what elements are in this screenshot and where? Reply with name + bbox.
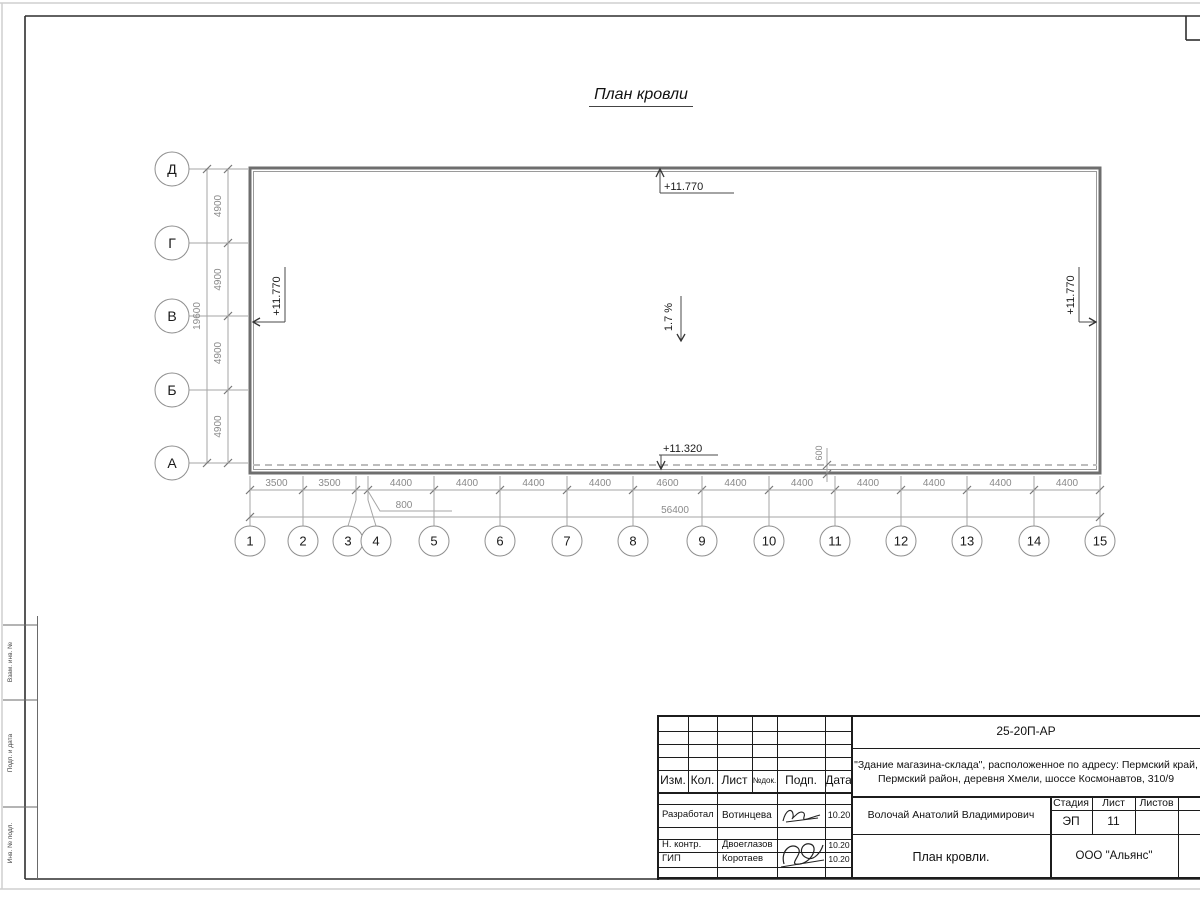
title-block-line [657, 715, 1200, 717]
sign-date-1: 10.20 [826, 839, 852, 852]
eaves-offset-label: 600 [814, 445, 824, 460]
side-strip-label: Взам. инв. № [7, 642, 14, 682]
col-axis-label: 1 [246, 534, 253, 549]
col-axis-label: 12 [894, 534, 908, 549]
dimension-total-label: 19600 [192, 302, 203, 330]
col-header-izm: Изм. [658, 770, 688, 792]
author-name: Волочай Анатолий Владимирович [852, 797, 1050, 834]
elev-right-value: +11.770 [1065, 275, 1077, 314]
col-axis-label: 3 [344, 534, 351, 549]
sign-date-0: 10.20 [826, 804, 852, 827]
sheets-label: Листов [1135, 797, 1178, 810]
elev-left-value: +11.770 [271, 276, 283, 315]
dimension-label: 800 [396, 500, 413, 511]
col-axis-label: 2 [299, 534, 306, 549]
col-axis-label: 4 [372, 534, 379, 549]
drawing-sheet: Взам. инв. №Подп. и датаИнв. № подл.ДГВБ… [0, 0, 1200, 900]
sign-name-0: Вотинцева [719, 804, 779, 827]
page-title: План кровли [589, 86, 693, 107]
row-axis-label: Д [167, 161, 177, 177]
dimension-label: 4400 [522, 478, 545, 489]
col-axis-label: 5 [430, 534, 437, 549]
dimension-label: 4900 [213, 341, 224, 364]
dimension-label: 4400 [456, 478, 479, 489]
side-strip-label: Инв. № подл. [7, 823, 14, 864]
title-block-line [852, 748, 1200, 749]
title-block-line [777, 716, 778, 878]
sheets-value [1135, 810, 1178, 834]
title-block-line [657, 877, 1200, 879]
dimension-label: 4400 [923, 478, 946, 489]
dimension-label: 4400 [589, 478, 612, 489]
title-block-line [717, 716, 718, 878]
title-block-line [752, 716, 753, 793]
sign-role-2: ГИП [659, 852, 719, 867]
sign-role-0: Разработал [659, 804, 719, 827]
row-axis-label: Г [168, 235, 176, 251]
dimension-label: 4400 [1056, 478, 1079, 489]
slope-value: 1.7 % [663, 303, 675, 331]
drawing-name: План кровли. [852, 835, 1050, 879]
row-axis-label: В [167, 308, 176, 324]
col-axis-label: 8 [629, 534, 636, 549]
dimension-label: 3500 [318, 478, 341, 489]
title-block-line [852, 834, 1200, 835]
title-block-line [825, 716, 826, 878]
title-block-line [852, 796, 1200, 798]
elev-top-value: +11.770 [664, 181, 703, 193]
dimension-label: 4400 [989, 478, 1012, 489]
title-block-line [658, 744, 852, 745]
title-block-line [658, 839, 852, 840]
title-block-line [658, 792, 852, 794]
sheet-value: 11 [1092, 810, 1135, 834]
title-block-line [658, 867, 852, 868]
signature-votintseva [780, 806, 824, 826]
title-block-line [658, 827, 852, 828]
company-name: ООО "Альянс" [1050, 835, 1178, 879]
col-axis-label: 7 [563, 534, 570, 549]
col-header-list: Лист [717, 770, 752, 792]
dimension-label: 4400 [390, 478, 413, 489]
title-block-line [1178, 796, 1179, 878]
row-axis-label: Б [167, 382, 176, 398]
col-header-podp: Подп. [777, 770, 825, 792]
row-axis-label: А [167, 455, 177, 471]
col-axis-label: 11 [828, 534, 842, 549]
col-axis-label: 13 [960, 534, 974, 549]
col-axis-leader [348, 500, 356, 526]
title-block-line [1050, 796, 1052, 878]
col-axis-label: 6 [496, 534, 503, 549]
title-block-line [658, 731, 852, 732]
dimension-label: 4400 [791, 478, 814, 489]
dimension-label: 4900 [213, 415, 224, 438]
object-address-line1: "Здание магазина-склада", расположенное … [854, 759, 1198, 771]
sign-date-2: 10.20 [826, 852, 852, 867]
col-axis-leader [368, 500, 376, 526]
title-block-line [1135, 796, 1136, 835]
dimension-label: 4400 [724, 478, 747, 489]
sheet-label: Лист [1092, 797, 1135, 810]
roof-outline-inner [254, 172, 1097, 470]
title-block-line [658, 804, 852, 805]
elev-eaves-value: +11.320 [663, 443, 702, 455]
sign-role-1: Н. контр. [659, 839, 719, 852]
object-address: "Здание магазина-склада", расположенное … [852, 748, 1200, 796]
title-block-line [1092, 796, 1093, 835]
title-block-line [657, 715, 659, 880]
dimension-label: 4600 [656, 478, 679, 489]
col-axis-label: 9 [698, 534, 705, 549]
col-header-ndok: №док. [752, 770, 777, 792]
signature-gip-nkontr [778, 838, 826, 869]
doc-code: 25-20П-АР [852, 717, 1200, 747]
object-address-line2: Пермский район, деревня Хмели, шоссе Кос… [878, 773, 1174, 785]
sign-name-2: Коротаев [719, 852, 779, 867]
stage-value: ЭП [1050, 810, 1092, 834]
col-header-kol: Кол. [688, 770, 717, 792]
roof-outline [250, 168, 1100, 473]
stage-label: Стадия [1050, 797, 1092, 810]
col-axis-label: 14 [1027, 534, 1041, 549]
side-strip-label: Подп. и дата [7, 733, 14, 772]
dimension-label: 4900 [213, 194, 224, 217]
dimension-label: 4900 [213, 268, 224, 291]
title-block-line [658, 757, 852, 758]
title-block-line [658, 770, 852, 771]
title-block-line [688, 716, 689, 793]
dimension-label: 4400 [857, 478, 880, 489]
col-header-data: Дата [825, 770, 852, 792]
dimension-total-label: 56400 [661, 505, 689, 516]
col-axis-label: 10 [762, 534, 776, 549]
title-block-line [658, 852, 852, 853]
sign-name-1: Двоеглазов [719, 839, 779, 852]
col-axis-label: 15 [1093, 534, 1107, 549]
dimension-label: 3500 [265, 478, 288, 489]
